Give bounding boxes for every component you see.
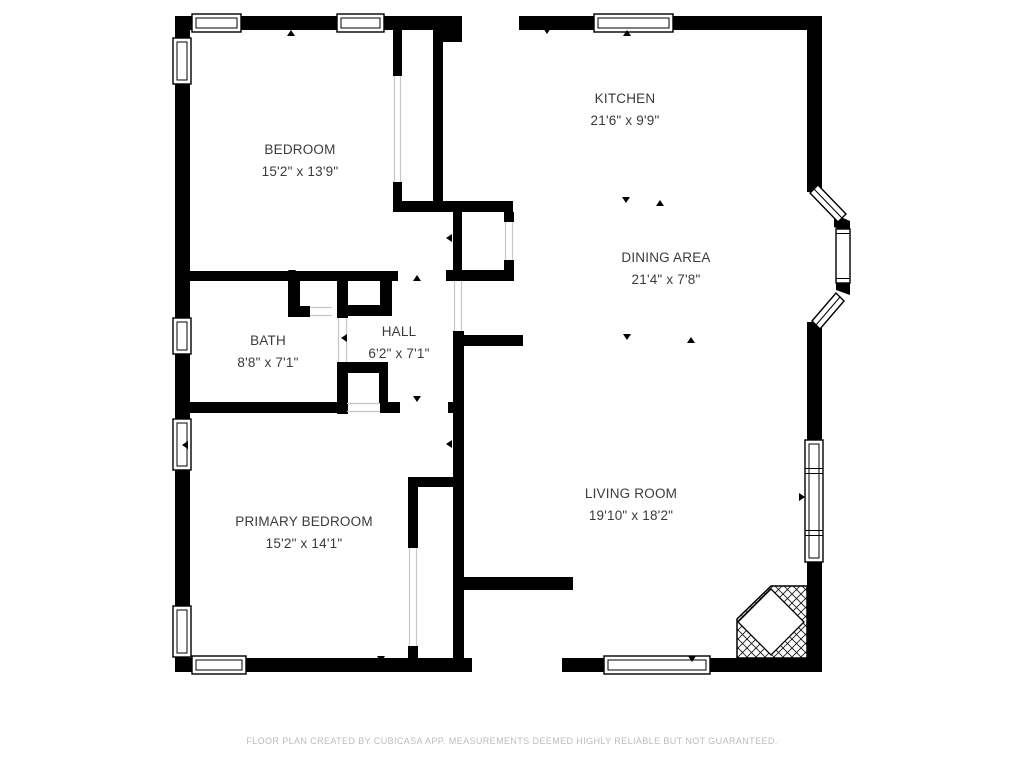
window-primary-bottom <box>192 656 246 674</box>
wall-pantry-south <box>446 270 514 281</box>
wall-hall-living-east <box>453 331 464 672</box>
room-dimensions: 15'2" x 14'1" <box>235 533 373 555</box>
window-bay-lower <box>812 293 844 329</box>
wall-pantry-east-top <box>504 212 514 222</box>
window-bay-middle <box>836 229 850 283</box>
wall-closet-south <box>393 201 513 212</box>
door-opening-hall-dining <box>455 281 462 331</box>
window-bath-left <box>173 318 191 354</box>
window-kitchen-top <box>594 14 673 32</box>
measure-arrow-icon <box>413 396 421 402</box>
measure-arrow-icon <box>446 440 452 448</box>
door-opening-bedroom-closet <box>395 76 401 182</box>
measure-arrow-icon <box>446 234 452 242</box>
wall-hall-south-mid <box>380 402 400 413</box>
room-label-hall: HALL 6'2" x 7'1" <box>368 321 429 365</box>
window-living-right <box>805 440 823 562</box>
room-dimensions: 15'2" x 13'9" <box>262 161 339 183</box>
measure-arrow-icon <box>341 334 347 342</box>
window-primary-left-2 <box>173 606 191 657</box>
fireplace <box>737 586 807 658</box>
room-name: BATH <box>237 330 298 352</box>
wall-bedroom-east <box>433 30 443 205</box>
floor-plan-page: BEDROOM 15'2" x 13'9" KITCHEN 21'6" x 9'… <box>0 0 1024 768</box>
window-bedroom-top-1 <box>192 14 241 32</box>
room-label-primary-bedroom: PRIMARY BEDROOM 15'2" x 14'1" <box>235 511 373 555</box>
wall-bath-cabinet-side <box>288 281 300 308</box>
footer-disclaimer: FLOOR PLAN CREATED BY CUBICASA APP. MEAS… <box>0 736 1024 746</box>
room-name: PRIMARY BEDROOM <box>235 511 373 533</box>
window-primary-left-1 <box>173 419 191 470</box>
door-opening-bath-cabinet <box>310 308 332 316</box>
measure-arrow-icon <box>622 197 630 203</box>
window-bedroom-top-2 <box>337 14 384 32</box>
wall-bath-south <box>190 402 347 413</box>
window-bedroom-left <box>173 38 191 84</box>
measure-arrow-icon <box>543 28 551 34</box>
wall-bedroom-closet-top <box>393 30 402 76</box>
measure-arrow-icon <box>623 334 631 340</box>
room-dimensions: 6'2" x 7'1" <box>368 343 429 365</box>
wall-hall-closet-east <box>379 373 388 404</box>
room-name: KITCHEN <box>591 88 660 110</box>
room-label-kitchen: KITCHEN 21'6" x 9'9" <box>591 88 660 132</box>
door-opening-primary-closet <box>410 548 417 646</box>
door-opening-hall-closet <box>347 404 380 412</box>
room-dimensions: 8'8" x 7'1" <box>237 352 298 374</box>
wall-bath-east-top <box>337 281 348 318</box>
wall-dining-living <box>453 335 523 346</box>
wall-pantry-west <box>453 212 462 278</box>
door-opening-pantry <box>506 222 513 260</box>
wall-right-top <box>807 16 822 192</box>
wall-entry-partition <box>453 577 573 590</box>
room-name: DINING AREA <box>621 247 710 269</box>
wall-primary-closet-stub <box>408 646 418 672</box>
room-name: LIVING ROOM <box>585 483 677 505</box>
measure-arrow-icon <box>413 275 421 281</box>
room-label-bath: BATH 8'8" x 7'1" <box>237 330 298 374</box>
room-dimensions: 21'4" x 7'8" <box>621 269 710 291</box>
window-bay-upper <box>810 185 846 222</box>
measure-arrow-icon <box>656 200 664 206</box>
wall-entry-jamb <box>441 16 462 42</box>
wall-chase-south <box>348 305 392 316</box>
measure-arrow-icon <box>687 337 695 343</box>
room-dimensions: 21'6" x 9'9" <box>591 110 660 132</box>
wall-bath-cabinet-foot <box>288 306 310 317</box>
room-label-dining-area: DINING AREA 21'4" x 7'8" <box>621 247 710 291</box>
floor-plan-drawing <box>0 0 1024 768</box>
room-label-living-room: LIVING ROOM 19'10" x 18'2" <box>585 483 677 527</box>
measure-arrow-icon <box>287 30 295 36</box>
room-label-bedroom: BEDROOM 15'2" x 13'9" <box>262 139 339 183</box>
room-name: BEDROOM <box>262 139 339 161</box>
wall-primary-closet-west <box>408 477 418 548</box>
room-name: HALL <box>368 321 429 343</box>
measure-arrow-icon <box>799 493 805 501</box>
room-dimensions: 19'10" x 18'2" <box>585 505 677 527</box>
